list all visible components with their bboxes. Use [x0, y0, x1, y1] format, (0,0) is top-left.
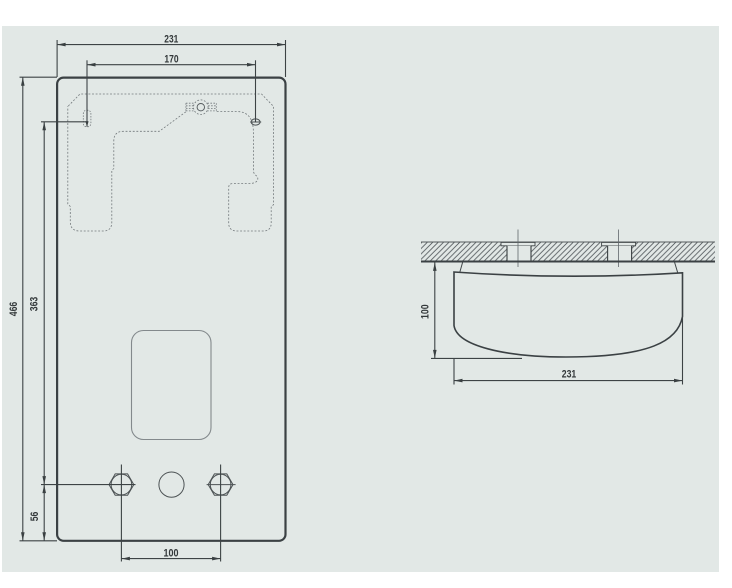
svg-text:100: 100: [164, 548, 179, 560]
svg-text:466: 466: [8, 302, 20, 317]
svg-text:231: 231: [562, 369, 577, 381]
svg-text:56: 56: [29, 512, 41, 522]
svg-text:231: 231: [164, 33, 178, 45]
svg-text:170: 170: [164, 54, 178, 66]
svg-text:363: 363: [29, 297, 41, 312]
svg-text:100: 100: [419, 304, 431, 319]
